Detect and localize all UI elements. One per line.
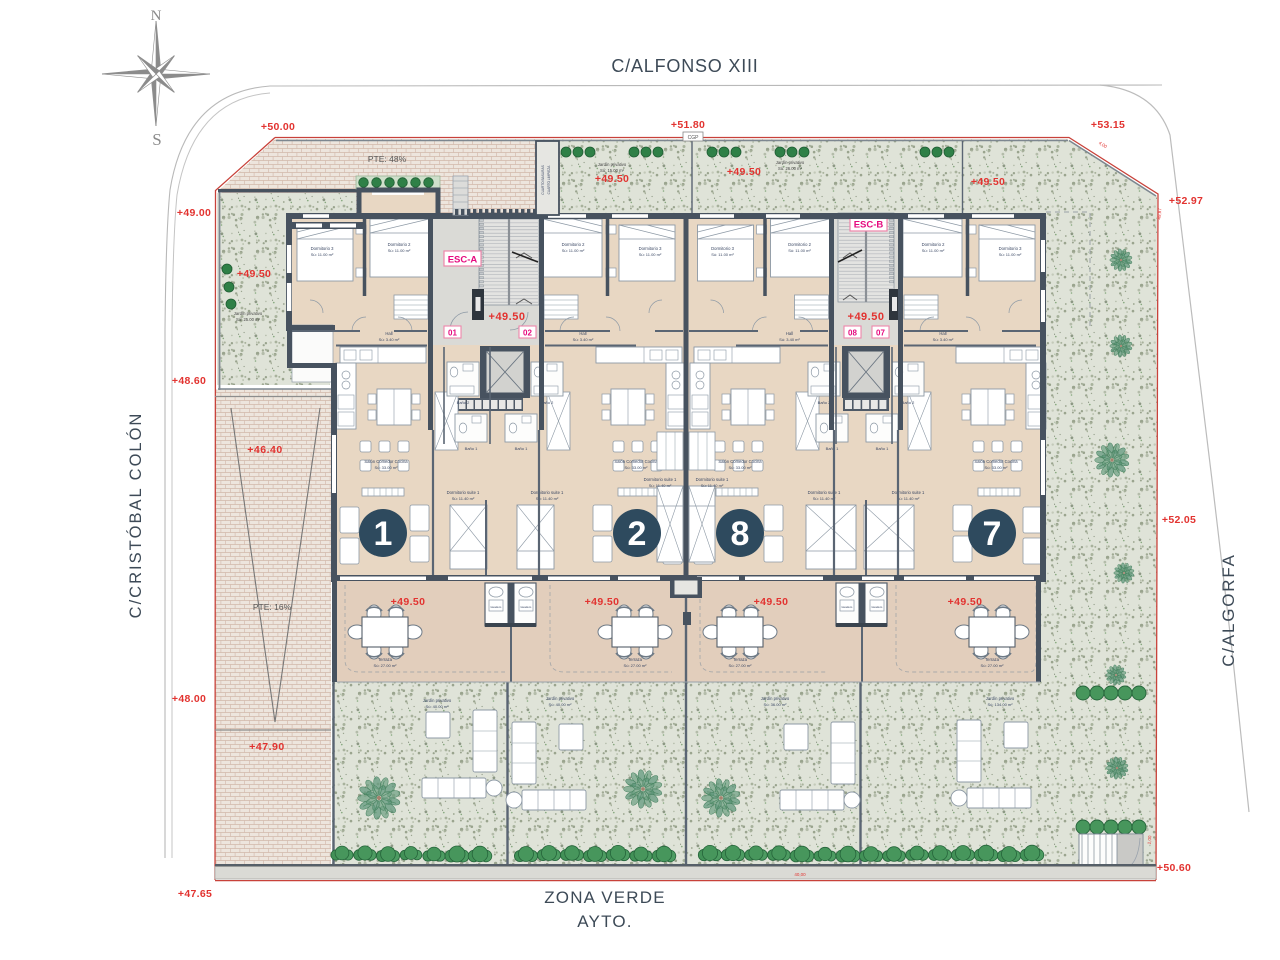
svg-text:Sú: 11.40 m²: Sú: 11.40 m²	[701, 483, 724, 488]
svg-text:+49.50: +49.50	[948, 596, 983, 608]
svg-text:Dormitorio suite 1: Dormitorio suite 1	[892, 490, 925, 495]
svg-text:Sú: 40.00 m²: Sú: 40.00 m²	[426, 704, 450, 709]
svg-text:Sú: 11.40 m²: Sú: 11.40 m²	[649, 483, 672, 488]
svg-text:Sú: 36.00 m²: Sú: 36.00 m²	[764, 702, 788, 707]
svg-text:S: S	[152, 130, 161, 149]
svg-text:Dormitorio 3: Dormitorio 3	[999, 246, 1022, 251]
svg-text:Dormitorio 2: Dormitorio 2	[788, 242, 811, 247]
svg-text:Hall: Hall	[385, 331, 392, 336]
svg-text:Terraza: Terraza	[378, 657, 393, 662]
svg-text:Terraza: Terraza	[985, 657, 1000, 662]
svg-text:Salón Comedor Cocina: Salón Comedor Cocina	[974, 459, 1018, 464]
svg-text:lavadero: lavadero	[491, 605, 502, 609]
svg-text:Sú: 134.00 m²: Sú: 134.00 m²	[987, 702, 1013, 707]
svg-text:+49.50: +49.50	[391, 596, 426, 608]
svg-text:Sú: 3.40 m²: Sú: 3.40 m²	[779, 337, 800, 342]
svg-text:02: 02	[523, 329, 532, 338]
svg-text:8: 8	[731, 515, 750, 553]
svg-text:Dormitorio 3: Dormitorio 3	[639, 246, 662, 251]
svg-text:+51.80: +51.80	[671, 119, 705, 131]
svg-text:ESC-B: ESC-B	[854, 220, 884, 231]
svg-text:Sú: 26.00 m²: Sú: 26.00 m²	[778, 166, 803, 171]
svg-text:Jardín privativo: Jardín privativo	[423, 698, 452, 703]
svg-text:Baño 1: Baño 1	[876, 446, 889, 451]
svg-text:Jardín privativo: Jardín privativo	[546, 696, 575, 701]
svg-text:+49.50: +49.50	[237, 268, 271, 280]
svg-text:Dormitorio suite 1: Dormitorio suite 1	[644, 477, 677, 482]
svg-text:C/ALFONSO XIII: C/ALFONSO XIII	[611, 56, 758, 76]
svg-text:Sú: 11.00 m²: Sú: 11.00 m²	[311, 252, 334, 257]
svg-text:ZONA VERDE: ZONA VERDE	[544, 888, 666, 907]
svg-text:Terraza: Terraza	[733, 657, 748, 662]
svg-text:Sú: 33.00 m²: Sú: 33.00 m²	[729, 465, 753, 470]
svg-text:7: 7	[983, 515, 1002, 553]
svg-text:Jardín privativo: Jardín privativo	[761, 696, 790, 701]
svg-text:Sú: 11.00 m²: Sú: 11.00 m²	[562, 248, 585, 253]
svg-text:lavadero: lavadero	[872, 605, 883, 609]
svg-text:CUARTO LIMPIEZA: CUARTO LIMPIEZA	[547, 165, 551, 195]
svg-text:+46.40: +46.40	[247, 444, 282, 456]
svg-text:Sú: 3.40 m²: Sú: 3.40 m²	[379, 337, 400, 342]
svg-text:+49.00: +49.00	[177, 207, 211, 219]
svg-text:PTE: 16%: PTE: 16%	[253, 602, 292, 612]
svg-text:+49.50: +49.50	[727, 166, 761, 178]
svg-text:Sú: 25.00 m²: Sú: 25.00 m²	[236, 317, 261, 322]
svg-text:Sú: 11.00 m²: Sú: 11.00 m²	[388, 248, 411, 253]
svg-text:Sú: 27.00 m²: Sú: 27.00 m²	[981, 663, 1005, 668]
svg-text:Sú: 27.00 m²: Sú: 27.00 m²	[374, 663, 398, 668]
svg-text:+53.15: +53.15	[1091, 119, 1125, 131]
svg-text:lavadero: lavadero	[842, 605, 853, 609]
svg-text:Jardín privativo: Jardín privativo	[234, 311, 263, 316]
svg-text:Dormitorio suite 1: Dormitorio suite 1	[531, 490, 564, 495]
svg-text:Sú: 27.00 m²: Sú: 27.00 m²	[624, 663, 648, 668]
svg-text:08: 08	[848, 329, 857, 338]
svg-text:Sú: 33.00 m²: Sú: 33.00 m²	[375, 465, 399, 470]
svg-text:+49.50: +49.50	[848, 311, 885, 323]
svg-text:40,00: 40,00	[794, 872, 806, 877]
svg-text:+52.05: +52.05	[1162, 514, 1196, 526]
svg-text:1: 1	[374, 515, 393, 553]
svg-text:Terraza: Terraza	[628, 657, 643, 662]
svg-text:2,00: 2,00	[1147, 835, 1153, 845]
svg-text:+49.50: +49.50	[754, 596, 789, 608]
svg-text:Baño 1: Baño 1	[515, 446, 528, 451]
svg-text:+47.90: +47.90	[249, 741, 284, 753]
svg-text:Dormitorio suite 1: Dormitorio suite 1	[696, 477, 729, 482]
svg-text:Dormitorio 2: Dormitorio 2	[388, 242, 411, 247]
svg-text:+49.50: +49.50	[585, 596, 620, 608]
svg-text:lavadero: lavadero	[521, 605, 532, 609]
svg-text:C/CRISTÓBAL COLÓN: C/CRISTÓBAL COLÓN	[126, 412, 145, 619]
svg-text:Dormitorio 2: Dormitorio 2	[562, 242, 585, 247]
svg-text:Sú: 11.00 m²: Sú: 11.00 m²	[711, 252, 734, 257]
svg-text:Jardín privativo: Jardín privativo	[986, 696, 1015, 701]
svg-text:Jardín privativo: Jardín privativo	[598, 162, 627, 167]
svg-text:+47.65: +47.65	[178, 888, 212, 900]
svg-text:+48.00: +48.00	[172, 693, 206, 705]
svg-text:2: 2	[628, 515, 647, 553]
svg-text:Sú: 11.00 m²: Sú: 11.00 m²	[639, 252, 662, 257]
svg-text:Sú: 33.00 m²: Sú: 33.00 m²	[985, 465, 1009, 470]
svg-text:CUARTO BASURAS: CUARTO BASURAS	[541, 165, 545, 194]
svg-text:+50.60: +50.60	[1157, 862, 1191, 874]
svg-text:+52.97: +52.97	[1169, 195, 1203, 207]
svg-text:Dormitorio suite 1: Dormitorio suite 1	[808, 490, 841, 495]
svg-text:Dormitorio 3: Dormitorio 3	[311, 246, 334, 251]
svg-text:Jardín privativo: Jardín privativo	[776, 160, 805, 165]
svg-text:Baño 1: Baño 1	[826, 446, 839, 451]
svg-text:ESC-A: ESC-A	[448, 255, 478, 266]
svg-text:+50.00: +50.00	[261, 121, 295, 133]
svg-text:Sú: 11.40 m²: Sú: 11.40 m²	[897, 496, 920, 501]
svg-text:Sú: 27.00 m²: Sú: 27.00 m²	[729, 663, 753, 668]
svg-text:Salón Comedor Cocina: Salón Comedor Cocina	[718, 459, 762, 464]
svg-text:Sú: 33.00 m²: Sú: 33.00 m²	[625, 465, 649, 470]
svg-text:Sú: 11.00 m²: Sú: 11.00 m²	[788, 248, 811, 253]
svg-text:Sú: 3.40 m²: Sú: 3.40 m²	[933, 337, 954, 342]
svg-text:C/ALGORFA: C/ALGORFA	[1219, 553, 1238, 667]
svg-text:Salón Comedor Cocina: Salón Comedor Cocina	[364, 459, 408, 464]
svg-text:CGP: CGP	[688, 135, 700, 141]
svg-text:Sú: 15.00 m²: Sú: 15.00 m²	[600, 168, 625, 173]
svg-text:07: 07	[876, 329, 885, 338]
svg-text:PTE: 48%: PTE: 48%	[368, 154, 407, 164]
svg-text:Dormitorio suite 1: Dormitorio suite 1	[447, 490, 480, 495]
svg-text:Sú: 3.40 m²: Sú: 3.40 m²	[573, 337, 594, 342]
svg-text:Baño 2: Baño 2	[457, 400, 470, 405]
svg-text:Dormitorio 3: Dormitorio 3	[711, 246, 734, 251]
svg-text:49,87: 49,87	[1157, 208, 1163, 220]
svg-text:+49.50: +49.50	[971, 176, 1005, 188]
svg-text:01: 01	[448, 329, 457, 338]
svg-text:Sú: 11.40 m²: Sú: 11.40 m²	[813, 496, 836, 501]
svg-text:N: N	[151, 8, 162, 24]
svg-text:Hall: Hall	[786, 331, 793, 336]
svg-text:Dormitorio 2: Dormitorio 2	[922, 242, 945, 247]
svg-text:Baño 1: Baño 1	[465, 446, 478, 451]
svg-text:Salón Comedor Cocina: Salón Comedor Cocina	[614, 459, 658, 464]
svg-text:Sú: 11.40 m²: Sú: 11.40 m²	[452, 496, 475, 501]
svg-text:Sú: 11.00 m²: Sú: 11.00 m²	[922, 248, 945, 253]
svg-text:AYTO.: AYTO.	[577, 912, 632, 931]
svg-text:Baño 2: Baño 2	[902, 400, 915, 405]
svg-text:Sú: 11.00 m²: Sú: 11.00 m²	[999, 252, 1022, 257]
svg-text:Sú: 40.00 m²: Sú: 40.00 m²	[549, 702, 573, 707]
svg-text:+49.50: +49.50	[489, 311, 526, 323]
svg-text:+49.50: +49.50	[595, 173, 629, 185]
svg-text:+48.60: +48.60	[172, 375, 206, 387]
